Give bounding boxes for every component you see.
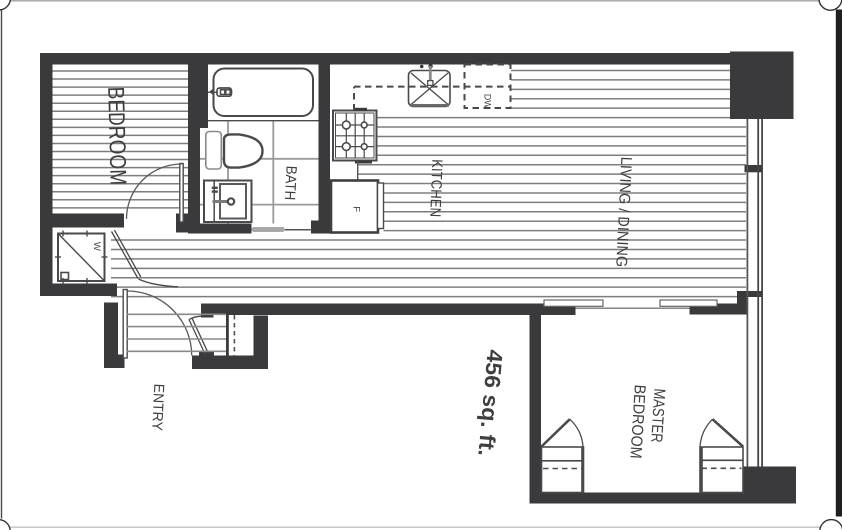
svg-text:W: W [91,242,102,251]
svg-text:456 sq. ft.: 456 sq. ft. [473,349,507,458]
svg-text:DW: DW [482,94,492,109]
svg-text:MASTER: MASTER [647,388,667,443]
svg-text:KITCHEN: KITCHEN [426,159,445,218]
svg-text:BATH: BATH [281,165,300,200]
svg-text:F: F [351,206,362,212]
svg-text:BEDROOM: BEDROOM [103,86,132,185]
svg-text:ENTRY: ENTRY [148,383,166,431]
svg-text:LIVING / DINING: LIVING / DINING [612,156,634,267]
svg-text:BEDROOM: BEDROOM [626,384,647,459]
